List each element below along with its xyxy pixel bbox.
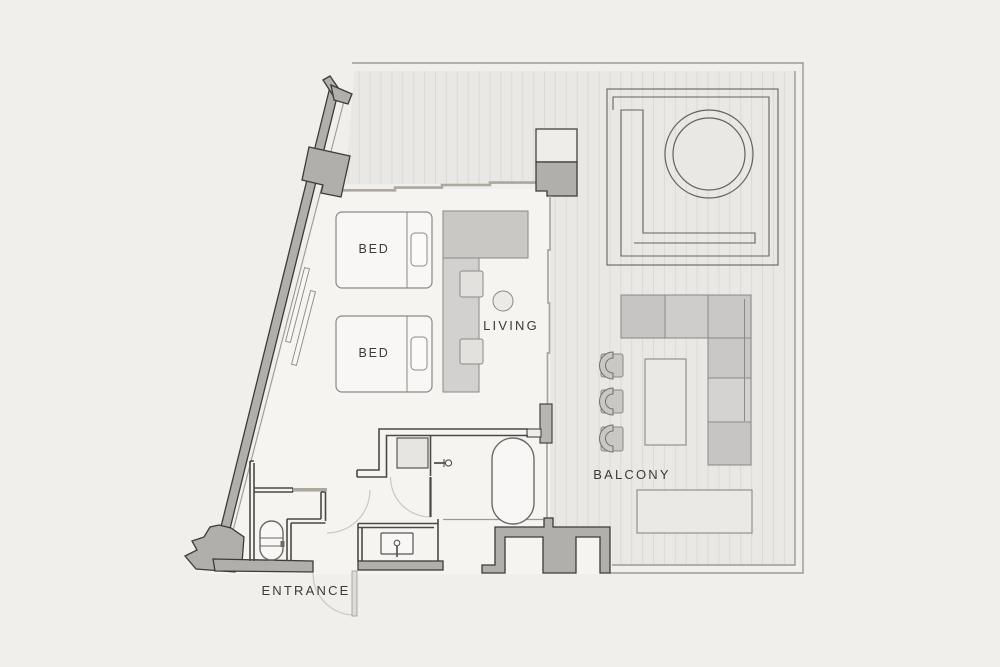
side-table-circle <box>493 291 513 311</box>
outdoor-chair-2 <box>600 388 624 415</box>
stool-1 <box>460 271 483 297</box>
stool-2 <box>460 339 483 364</box>
outdoor-coffee-table <box>645 359 686 445</box>
outdoor-chair-1 <box>600 352 624 379</box>
door-header <box>293 488 327 492</box>
floor-plan-page: BED BED LIVING BALCONY ENTRANCE <box>0 0 1000 667</box>
pillow <box>411 337 427 370</box>
entrance-door-leaf <box>352 571 357 616</box>
label-living: LIVING <box>483 318 539 333</box>
outdoor-lounger <box>637 490 752 533</box>
floor-plan-canvas: BED BED LIVING BALCONY ENTRANCE <box>0 0 1000 667</box>
pillow <box>411 233 427 266</box>
toilet <box>260 521 285 560</box>
bathtub <box>492 438 534 524</box>
tv-console <box>443 211 528 258</box>
outdoor-chair-3 <box>600 425 624 452</box>
label-bed-1: BED <box>358 242 389 256</box>
label-entrance: ENTRANCE <box>261 583 350 598</box>
corner-pillar <box>536 129 577 196</box>
label-bed-2: BED <box>358 346 389 360</box>
pocket-door <box>540 404 552 443</box>
label-balcony: BALCONY <box>593 467 671 482</box>
round-spa <box>665 110 753 198</box>
shower-tray <box>397 438 428 468</box>
